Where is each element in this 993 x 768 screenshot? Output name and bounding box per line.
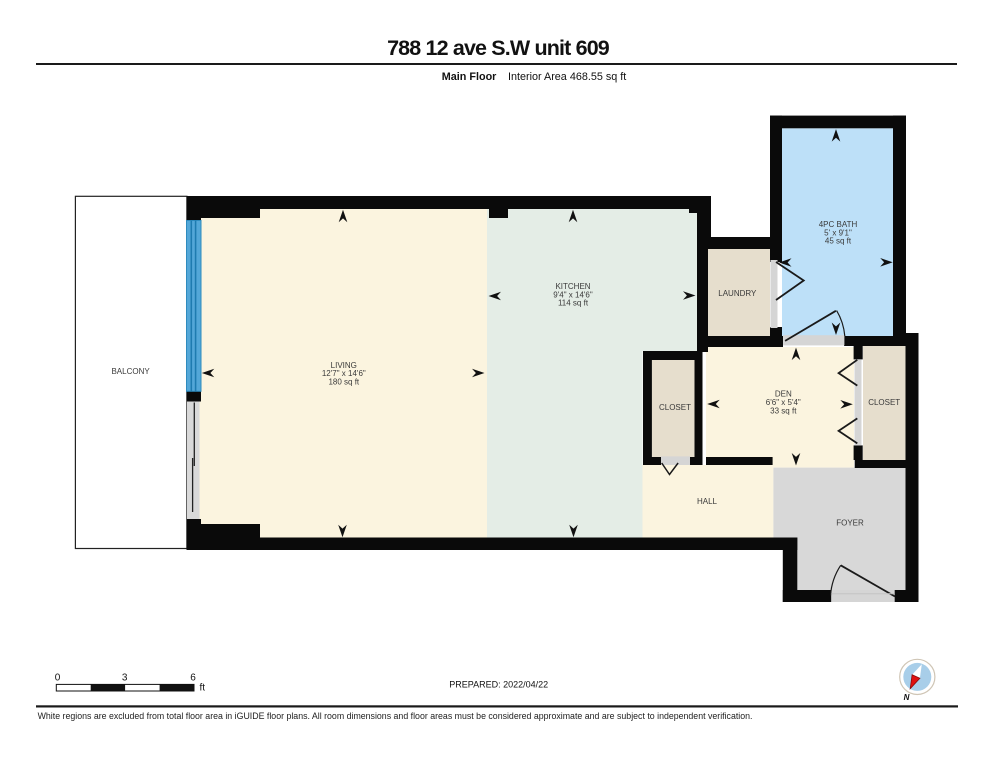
svg-text:CLOSET: CLOSET [868, 398, 900, 407]
svg-text:Main Floor: Main Floor [442, 71, 497, 83]
svg-text:114 sq ft: 114 sq ft [558, 299, 589, 308]
svg-text:0: 0 [55, 673, 61, 684]
svg-text:788 12 ave S.W unit 609: 788 12 ave S.W unit 609 [387, 36, 610, 60]
svg-text:6: 6 [190, 673, 196, 684]
svg-text:180 sq ft: 180 sq ft [328, 378, 359, 387]
svg-text:HALL: HALL [697, 497, 718, 506]
svg-text:FOYER: FOYER [836, 519, 864, 528]
svg-text:Interior Area 468.55 sq ft: Interior Area 468.55 sq ft [508, 71, 626, 83]
svg-text:33 sq ft: 33 sq ft [770, 407, 797, 416]
svg-text:White regions are excluded fro: White regions are excluded from total fl… [38, 711, 753, 721]
svg-text:LAUNDRY: LAUNDRY [718, 289, 757, 298]
svg-text:PREPARED: 2022/04/22: PREPARED: 2022/04/22 [449, 680, 548, 690]
svg-text:45 sq ft: 45 sq ft [825, 237, 852, 246]
svg-text:BALCONY: BALCONY [111, 367, 150, 376]
svg-text:3: 3 [122, 673, 128, 684]
svg-text:DEN: DEN [775, 389, 792, 398]
svg-text:N: N [904, 693, 910, 702]
svg-text:ft: ft [200, 683, 206, 694]
svg-text:CLOSET: CLOSET [659, 403, 691, 412]
